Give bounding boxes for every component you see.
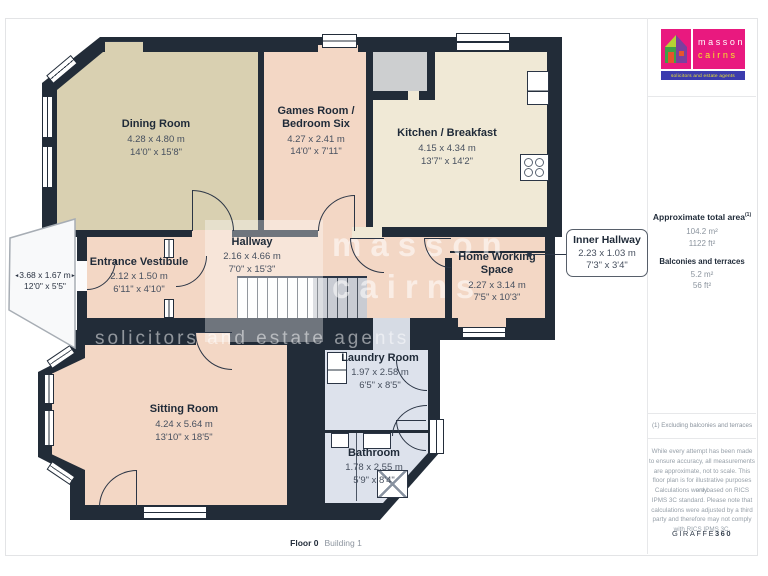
giraffe360-credit: GIRAFFE360 [649,529,755,538]
window [164,299,174,318]
room-label-kitchen: Kitchen / Breakfast 4.15 x 4.34 m 13'7" … [382,127,512,168]
sidebar-divider [648,96,756,97]
dimension-arrow-right: ► [71,273,76,279]
window [456,33,510,51]
window [429,419,444,454]
logo-house-icon [661,29,691,69]
sidebar-divider [648,413,756,414]
room-label-laundry: Laundry Room 1.97 x 2.58 m 6'5" x 8'5" [325,352,435,392]
window [143,506,207,519]
inner-hallway-callout: Inner Hallway 2.23 x 1.03 m 7'3" x 3'4" [566,229,648,277]
stairs-treads [237,277,367,318]
door-opening [352,227,382,238]
room-label-sitting: Sitting Room 4.24 x 5.64 m 13'10" x 18'5… [124,403,244,444]
total-area-metric: 104.2 m² [649,227,755,236]
room-label-games: Games Room / Bedroom Six 4.27 x 2.41 m 1… [266,105,366,159]
footnote-marker: (1) [745,212,751,218]
rear-porch [458,318,506,327]
fridge-fixture [527,71,549,105]
kitchen-pantry [373,52,427,91]
sidebar-divider [648,438,756,439]
pantry-opening [408,91,419,100]
hob-burner [524,158,533,167]
corridor-floor [373,318,410,352]
total-area-imperial: 1122 ft² [649,239,755,248]
door-opening [318,230,353,238]
hob-burner [535,158,544,167]
hob-fixture [520,154,549,181]
floor-label: Floor 0 [290,538,318,548]
balcony-area-imperial: 56 ft² [649,281,755,290]
sidebar-divider [647,18,648,554]
masson-cairns-logo: masson cairns solicitors and estate agen… [661,29,745,80]
disclaimer-text: Calculations were based on RICS IPMS 3C … [649,486,755,535]
total-area-label: Approximate total area(1) [649,212,755,222]
logo-wordmark: masson cairns [693,29,745,69]
dining-bay-recess [105,41,143,54]
room-label-dining: Dining Room 4.28 x 4.80 m 14'0" x 15'8" [96,118,216,159]
plan-footer: Floor 0Building 1 [5,538,647,548]
stairs-edge [237,276,367,278]
balcony-area-metric: 5.2 m² [649,270,755,279]
wall-segment [427,52,435,100]
balcony-label: ◄3.68 x 1.67 m► 12'0" x 5'5" [3,270,87,293]
hob-burner [535,168,544,177]
callout-leader [532,254,566,255]
room-label-hws: Home Working Space 2.27 x 3.14 m 7'5" x … [451,251,543,305]
balcony-area-label: Balconies and terraces [649,257,755,266]
window [322,34,357,48]
room-label-bathroom: Bathroom 1.78 x 2.55 m 5'9" x 8'4" [319,447,429,487]
logo-tagline: solicitors and estate agents [661,71,745,80]
area-footnote: (1) Excluding balconies and terraces [649,422,755,429]
rear-steps [462,327,506,338]
floorplan-page: masson cairns solicitors and estate agen… [0,0,768,576]
building-label: Building 1 [325,538,362,548]
window [42,96,53,138]
window [44,374,54,404]
window [42,146,53,188]
sitting-bay-floor [52,358,85,470]
window [44,410,54,446]
sink-fixture [331,433,349,448]
hob-burner [524,168,533,177]
